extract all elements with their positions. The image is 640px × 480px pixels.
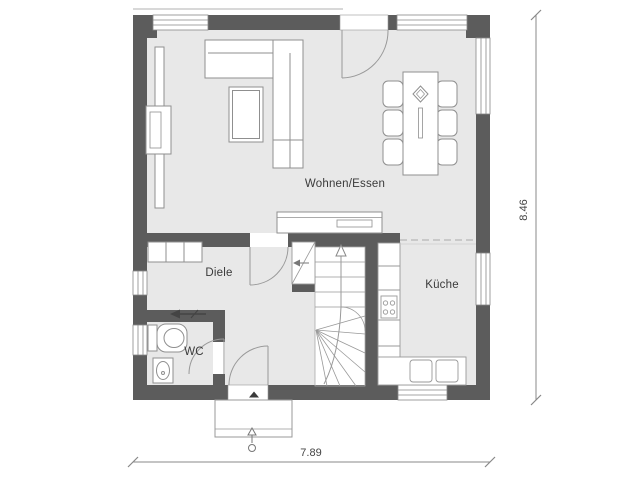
dimension-line-right — [531, 10, 541, 405]
room-label-kitchen: Küche — [425, 279, 459, 291]
room-label-wc: WC — [184, 346, 204, 358]
window-bottom-kitchen — [398, 385, 447, 400]
floor-plan-drawing — [0, 0, 640, 480]
window-top-right — [397, 15, 467, 30]
toilet — [148, 324, 187, 352]
floor-plan-canvas: Wohnen/Essen Diele WC Küche 7.89 8.46 — [0, 0, 640, 480]
coffee-table — [229, 87, 263, 142]
doorbell-symbol-icon — [248, 428, 256, 452]
understair-closet — [292, 242, 315, 284]
window-right-upper — [476, 38, 490, 114]
dining-table — [403, 72, 438, 175]
wardrobe — [148, 242, 202, 262]
window-left-hall — [133, 271, 147, 295]
window-right-kitchen — [476, 253, 490, 305]
washbasin — [153, 358, 173, 383]
room-label-living: Wohnen/Essen — [305, 178, 385, 190]
dimension-width-value: 7.89 — [300, 447, 321, 459]
window-top-left — [153, 15, 208, 30]
dimension-height-value: 8.46 — [518, 199, 530, 220]
room-label-hall: Diele — [205, 267, 232, 279]
window-left-wc — [133, 325, 147, 355]
tv-lowboard — [277, 212, 382, 233]
kitchen-sink-counter — [378, 357, 466, 385]
